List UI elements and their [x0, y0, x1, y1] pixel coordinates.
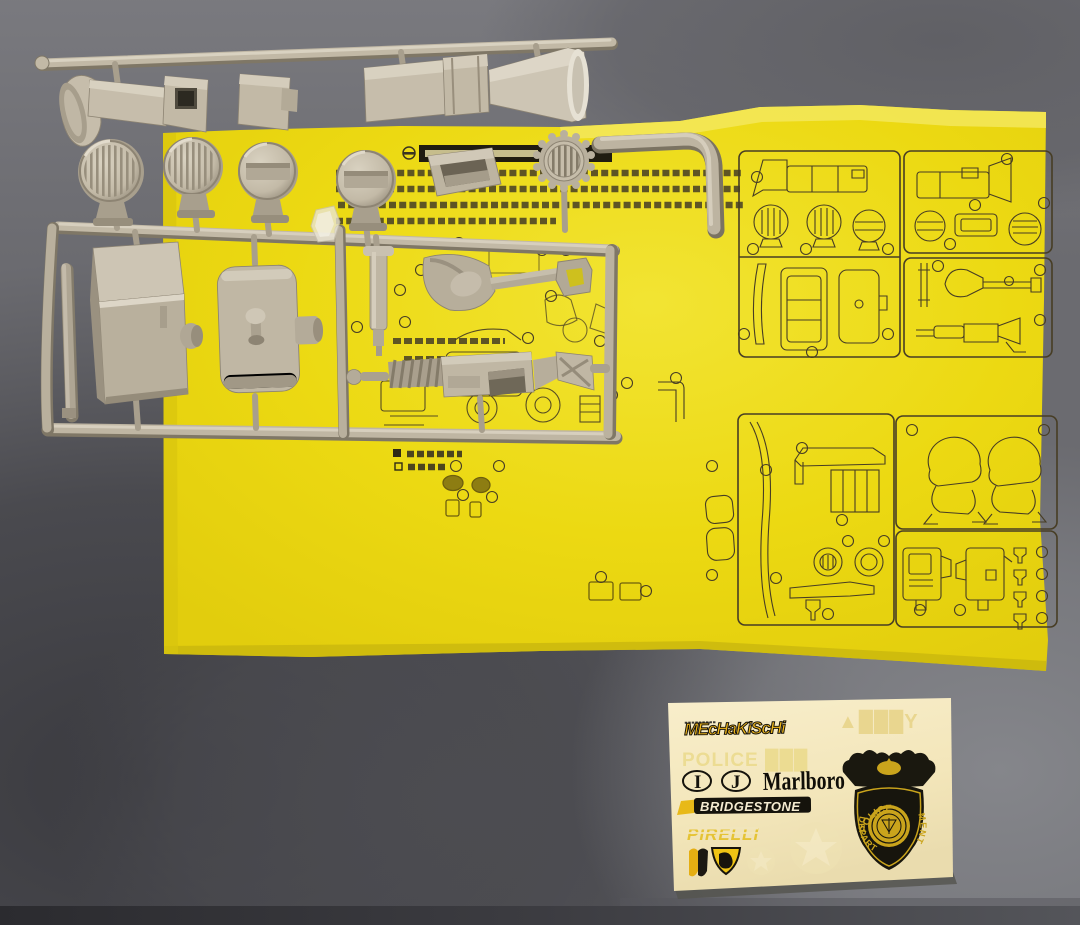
svg-text:▲███Y: ▲███Y — [838, 709, 919, 735]
svg-text:MEcHaKiScHi: MEcHaKiScHi — [684, 718, 787, 739]
svg-text:Marlboro: Marlboro — [763, 766, 845, 796]
svg-text:I: I — [694, 772, 701, 793]
svg-text:J: J — [731, 772, 741, 793]
svg-text:BRIDGESTONE: BRIDGESTONE — [700, 799, 801, 814]
